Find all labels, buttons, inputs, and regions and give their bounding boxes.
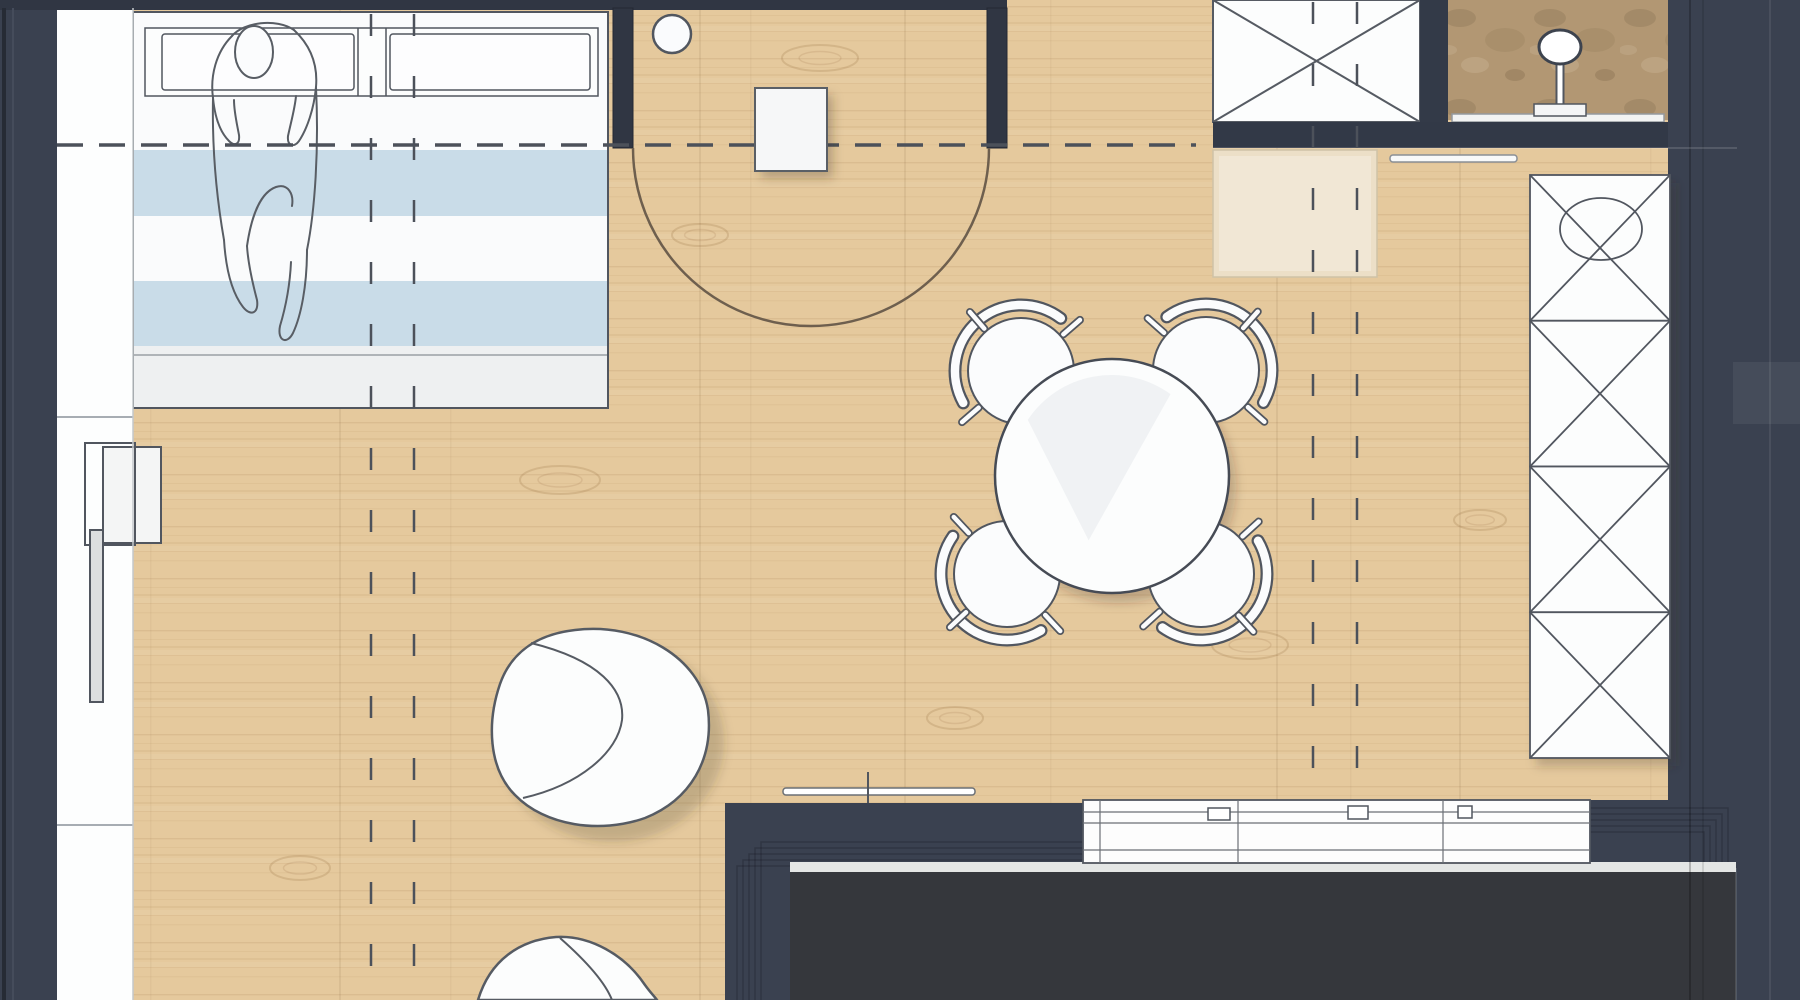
- kitchen-wall-right: [1590, 800, 1736, 872]
- shaft-x-box: [1213, 0, 1420, 122]
- wardrobe-panel: [1530, 175, 1670, 321]
- cabinet-handle: [1208, 808, 1230, 820]
- floor-plan: [0, 0, 1800, 1000]
- bathroom-wall: [1213, 122, 1737, 148]
- entry-side-table: [755, 88, 833, 178]
- towel-rail: [1390, 155, 1517, 162]
- right-wall-niche: [1733, 362, 1800, 424]
- entry-stool: [653, 15, 691, 53]
- left-wall: [0, 8, 57, 1000]
- outside-void: [790, 872, 1736, 1000]
- top-wall: [0, 0, 1007, 10]
- wardrobe-panel: [1530, 467, 1670, 613]
- kitchen-wall-leg: [725, 803, 790, 1000]
- door-pier: [987, 8, 1007, 148]
- wardrobe-panel: [1530, 321, 1670, 467]
- floor-plan-drawing: [0, 0, 1800, 1000]
- radiator: [90, 530, 103, 702]
- wardrobe-panel: [1530, 612, 1670, 758]
- shower-niche: [1448, 0, 1668, 122]
- tall-wardrobe: [1530, 175, 1676, 766]
- entry-rug: [1213, 150, 1377, 277]
- pillow: [390, 34, 590, 90]
- cabinet-handle: [1458, 806, 1472, 818]
- wall-divider: [1420, 0, 1448, 122]
- kitchen-counter: [1083, 800, 1590, 863]
- door-pier: [613, 8, 633, 148]
- cabinet-handle: [1348, 806, 1368, 819]
